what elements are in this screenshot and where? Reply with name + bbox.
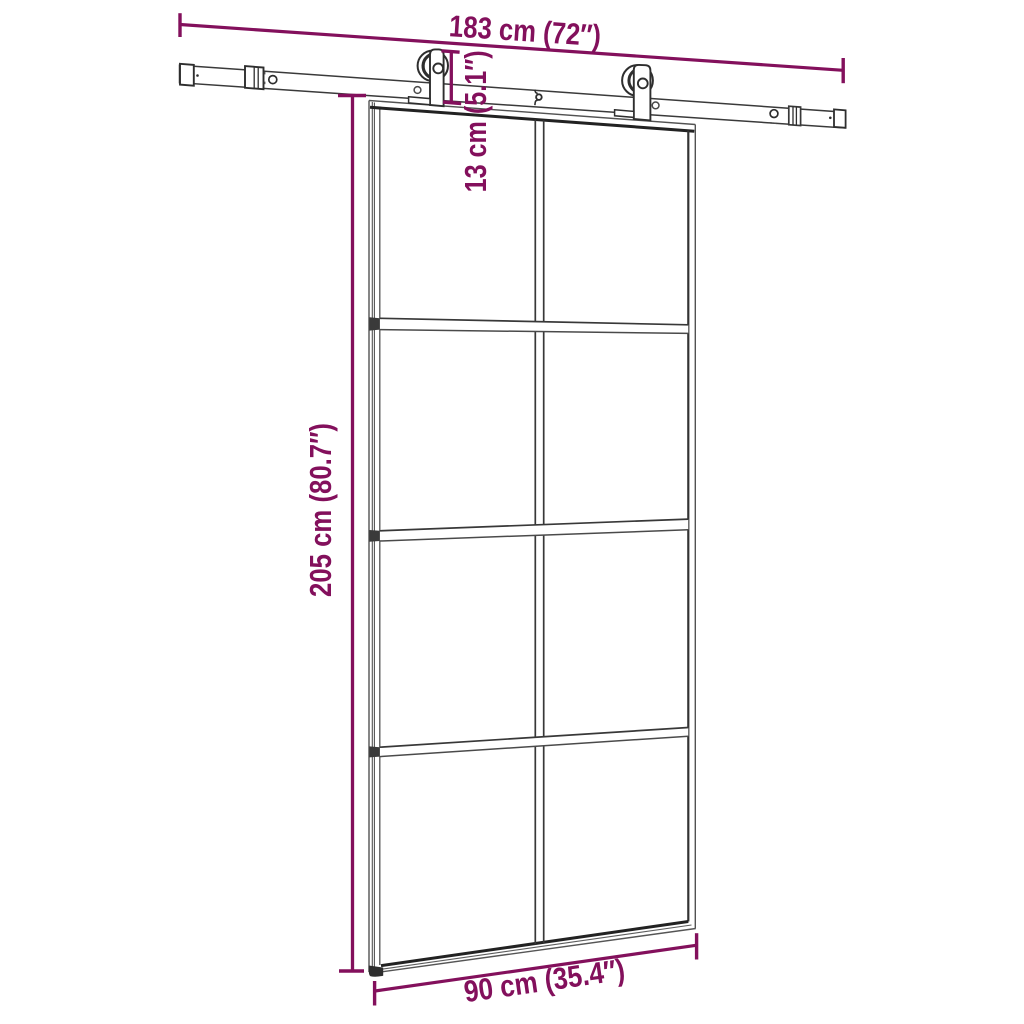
svg-text:205 cm (80.7″): 205 cm (80.7″): [304, 423, 338, 597]
svg-text:13 cm (5.1″): 13 cm (5.1″): [459, 50, 493, 192]
